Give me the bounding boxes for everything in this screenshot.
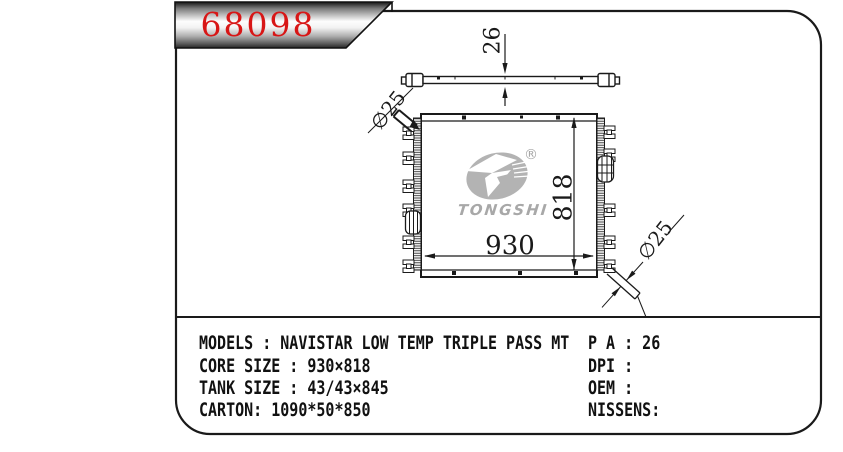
spec-row-pa: P A : 26 [588, 332, 660, 354]
watermark-logo-text: TONGSHI [454, 201, 552, 219]
dim-core-width-label: 930 [482, 231, 538, 261]
spec-row-nissens: NISSENS: [588, 399, 660, 421]
spec-row-dpi: DPI : [588, 355, 633, 377]
spec-row-tank-size: TANK SIZE : 43/43×845 [199, 377, 389, 399]
dim-core-height-label: 818 [549, 171, 578, 225]
technical-drawing [0, 0, 843, 452]
spec-row-oem: OEM : [588, 377, 633, 399]
radiator-spec-sheet: 68098 26 818 930 ∅25 ∅25 ® TONGSHI MODEL… [0, 0, 843, 452]
dim-core-thickness-label: 26 [481, 21, 506, 61]
spec-row-models: MODELS : NAVISTAR LOW TEMP TRIPLE PASS M… [199, 332, 569, 354]
spec-row-core-size: CORE SIZE : 930×818 [199, 355, 371, 377]
spec-row-carton: CARTON: 1090*50*850 [199, 399, 371, 421]
part-number: 68098 [188, 5, 328, 44]
registered-trademark-icon: ® [524, 147, 538, 163]
